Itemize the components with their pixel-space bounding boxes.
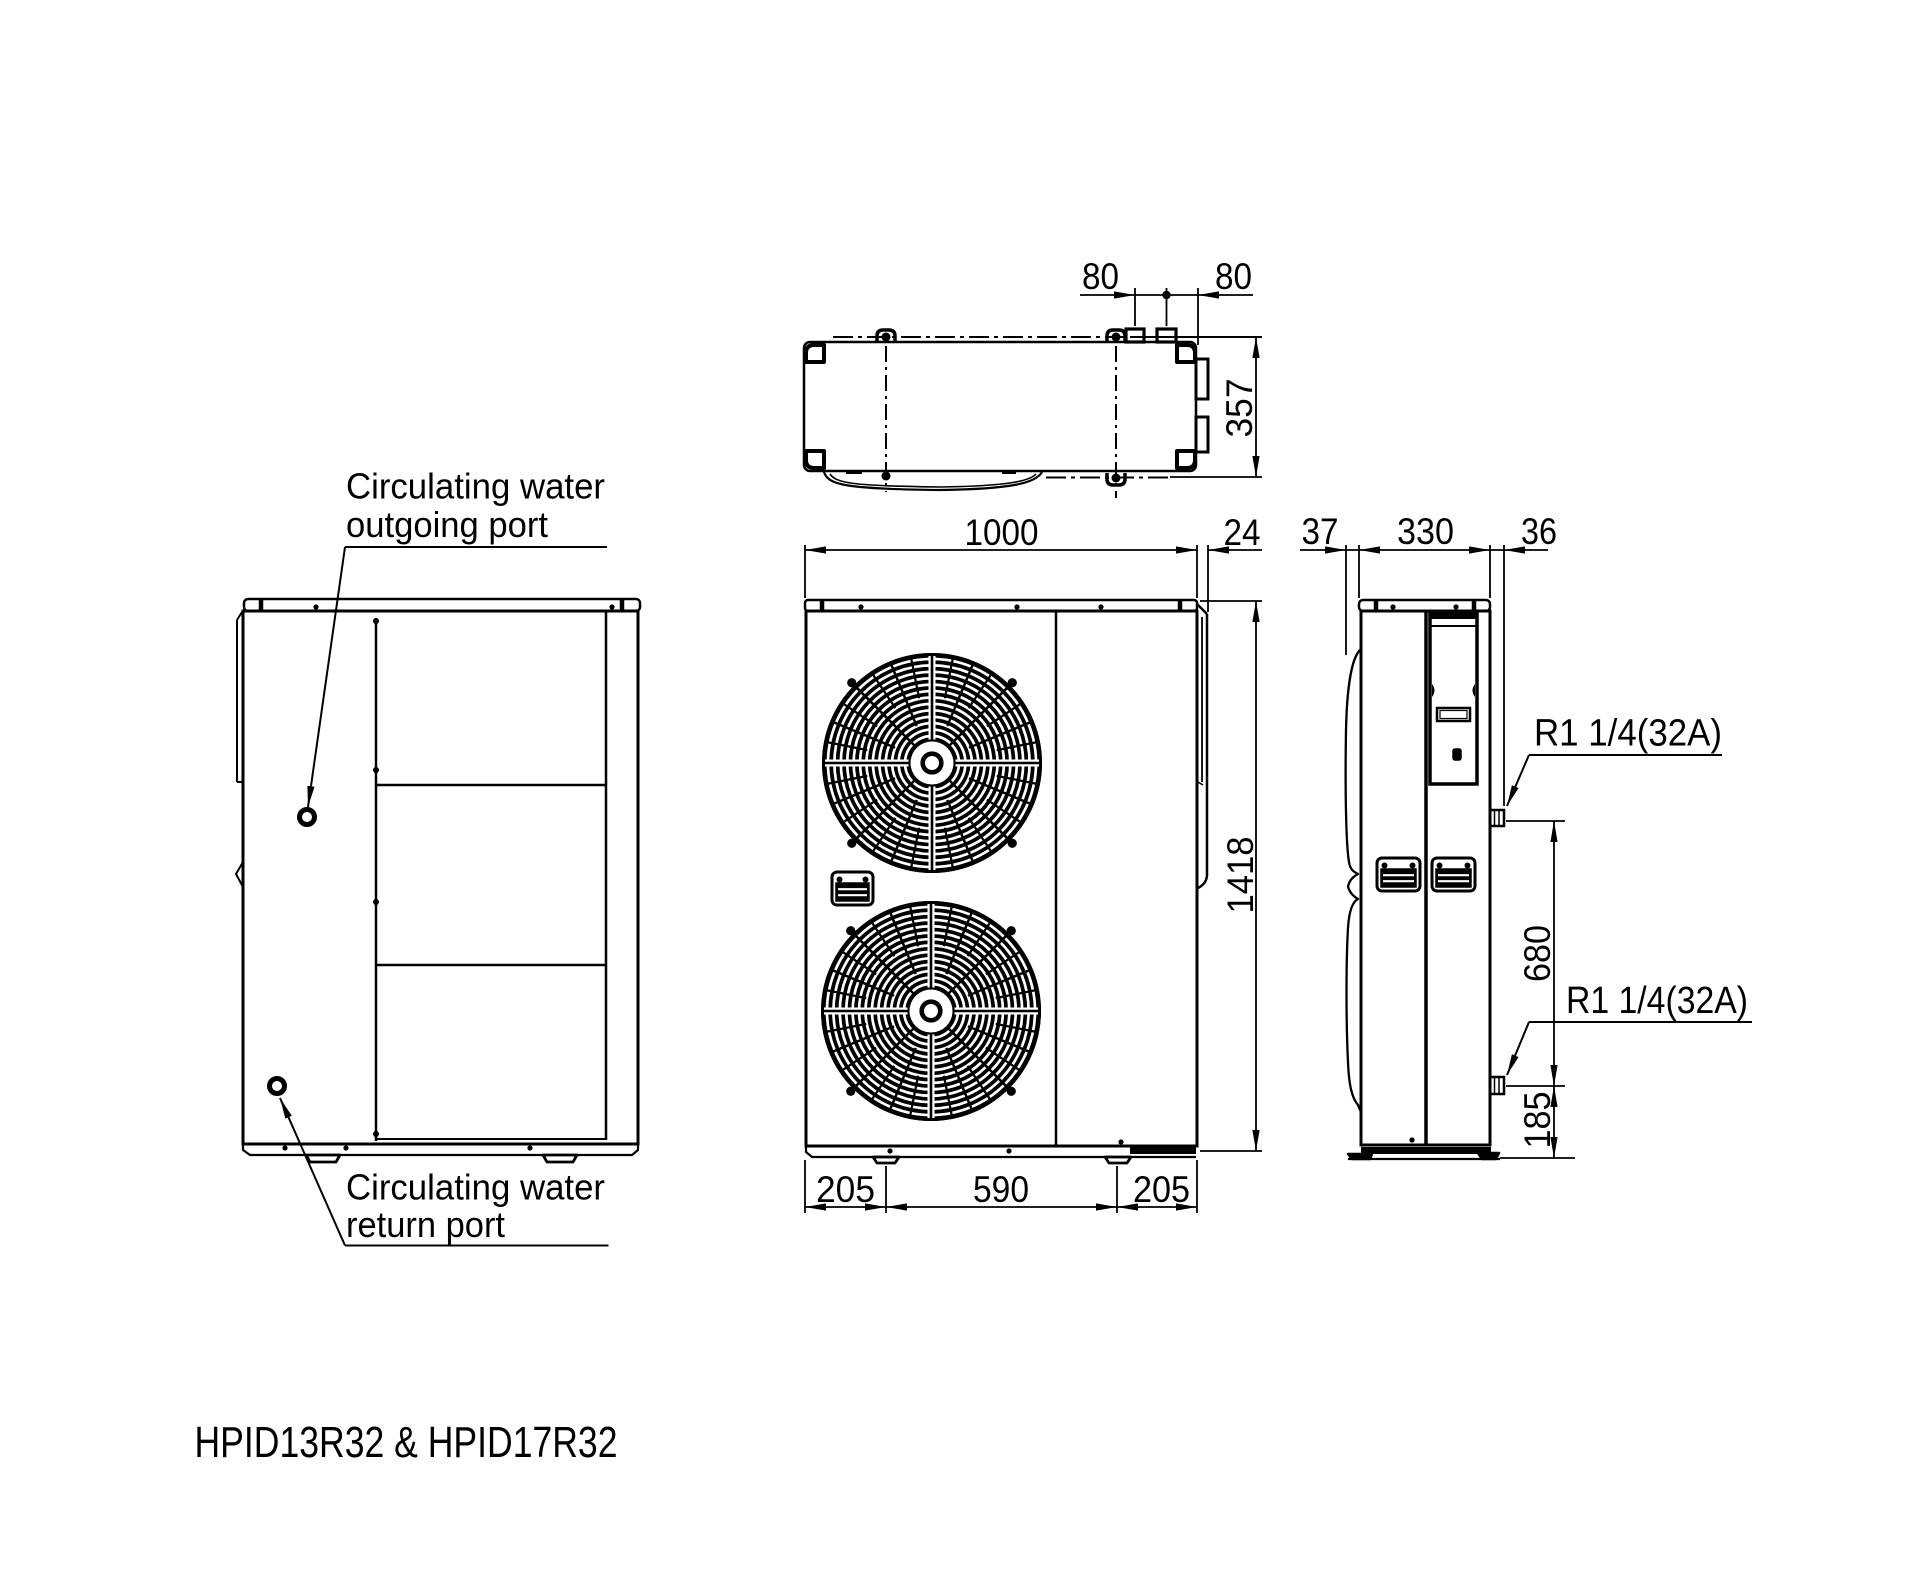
svg-text:205: 205 bbox=[1133, 1169, 1190, 1210]
svg-text:37: 37 bbox=[1302, 511, 1339, 552]
svg-text:205: 205 bbox=[816, 1169, 875, 1210]
svg-text:1418: 1418 bbox=[1220, 837, 1261, 914]
svg-text:HPID13R32 & HPID17R32: HPID13R32 & HPID17R32 bbox=[195, 1419, 618, 1467]
svg-text:Circulating water: Circulating water bbox=[346, 466, 605, 507]
svg-text:80: 80 bbox=[1082, 256, 1119, 297]
svg-text:357: 357 bbox=[1219, 379, 1260, 438]
svg-text:590: 590 bbox=[973, 1169, 1029, 1210]
svg-text:80: 80 bbox=[1215, 256, 1252, 297]
svg-text:return port: return port bbox=[346, 1204, 505, 1245]
svg-text:36: 36 bbox=[1521, 511, 1557, 552]
svg-text:185: 185 bbox=[1517, 1092, 1558, 1149]
svg-text:1000: 1000 bbox=[965, 512, 1039, 553]
svg-text:680: 680 bbox=[1517, 925, 1558, 982]
svg-text:outgoing port: outgoing port bbox=[346, 504, 548, 545]
svg-text:R1 1/4(32A): R1 1/4(32A) bbox=[1534, 713, 1722, 755]
svg-text:330: 330 bbox=[1397, 511, 1454, 552]
svg-text:R1 1/4(32A): R1 1/4(32A) bbox=[1566, 980, 1748, 1022]
svg-text:Circulating water: Circulating water bbox=[346, 1167, 605, 1208]
svg-text:24: 24 bbox=[1224, 512, 1261, 553]
